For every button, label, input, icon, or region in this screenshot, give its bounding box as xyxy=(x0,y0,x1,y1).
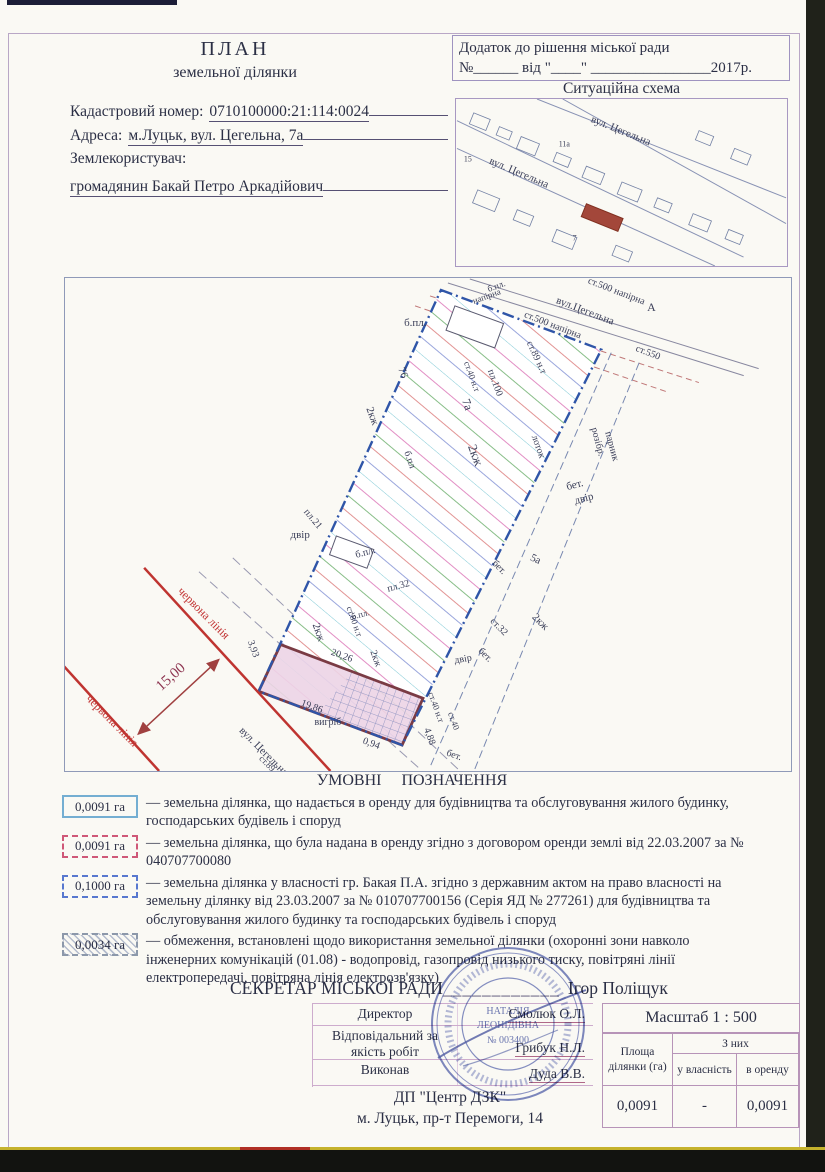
legend-title: УМОВНІ ПОЗНАЧЕННЯ xyxy=(62,772,762,790)
organization-address: м. Луцьк, пр-т Перемоги, 14 xyxy=(300,1109,600,1130)
map-buildings xyxy=(469,113,751,262)
scan-artifact-right-band xyxy=(806,0,825,1172)
stamp-line2: ЛЕОНІДІВНА xyxy=(477,1020,540,1031)
legend-item: 0,0091 га — земельна ділянка, що надаєть… xyxy=(62,794,762,831)
legend-swatch-ownership: 0,1000 га xyxy=(62,875,138,898)
title-line1: ПЛАН xyxy=(110,38,360,61)
map-labels: вул. Цегельнавул. Цегельна1511а7 xyxy=(464,113,653,242)
map-label: б.пл. xyxy=(404,317,427,329)
plan-svg: б.пл.762кжб.плпл.21двірб.пл.пл.322кж2кж7… xyxy=(65,278,791,771)
map-label: ст.500 напірна xyxy=(586,278,647,308)
cadastral-label: Кадастровий номер: xyxy=(70,103,203,121)
situation-map: вул. Цегельнавул. Цегельна1511а7 xyxy=(455,98,788,267)
legend-item: 0,0091 га — земельна ділянка, що була на… xyxy=(62,834,762,871)
stamp-line3: № 003400 xyxy=(487,1035,529,1046)
plan-drawing: б.пл.762кжб.плпл.21двірб.пл.пл.322кж2кж7… xyxy=(64,277,792,772)
map-label: 0,94 xyxy=(361,736,381,752)
area-group-header: З них xyxy=(673,1034,799,1054)
map-label: бет. xyxy=(476,646,495,665)
map-label: ст.550 xyxy=(634,343,662,362)
map-label: бет. xyxy=(445,748,463,764)
legend-swatch-lease-new: 0,0091 га xyxy=(62,795,138,818)
legend-item: 0,1000 га — земельна ділянка у власності… xyxy=(62,874,762,929)
map-label: 4,88 xyxy=(421,726,437,746)
round-stamp: НАТАЛІЯ ЛЕОНІДІВНА № 003400 xyxy=(408,938,608,1110)
situation-title: Ситуаційна схема xyxy=(455,80,788,98)
legend-text: — земельна ділянка, що була надана в оре… xyxy=(146,834,762,871)
scale-box: Масштаб 1 : 500 xyxy=(602,1003,800,1033)
map-label: 5а xyxy=(528,552,543,567)
address-label: Адреса: xyxy=(70,127,122,145)
map-highlighted-plot xyxy=(581,204,623,232)
address-row: Адреса: м.Луцьк, вул. Цегельна, 7а xyxy=(70,122,448,146)
scanned-land-plan-page: ПЛАН земельної ділянки Кадастровий номер… xyxy=(0,0,825,1172)
plan-title: ПЛАН земельної ділянки xyxy=(110,38,360,82)
map-label: А xyxy=(647,300,656,314)
landuser-value: громадянин Бакай Петро Аркадійович xyxy=(70,178,323,197)
map-label: розібр. xyxy=(588,426,606,457)
map-label: двір xyxy=(291,529,311,541)
area-subheader-lease: в оренду xyxy=(737,1054,799,1086)
legend-swatch-lease-old: 0,0091 га xyxy=(62,835,138,858)
map-label: 2кж xyxy=(529,611,551,633)
area-value-lease: 0,0091 xyxy=(737,1086,799,1127)
scan-artifact-bottom-band xyxy=(0,1150,825,1172)
map-label: напірна xyxy=(471,286,502,305)
map-label: пл.21 xyxy=(301,507,324,531)
legend-text: — земельна ділянка у власності гр. Бакая… xyxy=(146,874,762,929)
landuser-label: Землекористувач: xyxy=(70,150,186,168)
legend-text: — земельна ділянка, що надається в оренд… xyxy=(146,794,762,831)
annex-line2: №______ від "____" ________________2017р… xyxy=(459,58,783,78)
address-underline xyxy=(303,122,448,140)
legend-swatch-restrictions: 0,0034 га xyxy=(62,933,138,956)
map-label: ст.40 xyxy=(446,710,462,731)
cadastral-underline xyxy=(369,98,448,116)
landuser-underline xyxy=(323,173,448,191)
map-label: двір xyxy=(573,490,595,507)
landuser-value-row: громадянин Бакай Петро Аркадійович xyxy=(70,173,448,197)
map-label: 11а xyxy=(559,139,571,148)
map-label: вул. Цегельна xyxy=(589,113,652,148)
cadastral-value: 0710100000:21:114:0024 xyxy=(209,103,369,122)
map-label: червона лінія xyxy=(83,692,141,750)
map-label: ст.40 н.т xyxy=(426,691,446,724)
annex-box: Додаток до рішення міської ради №______ … xyxy=(452,35,790,81)
address-value: м.Луцьк, вул. Цегельна, 7а xyxy=(128,127,303,146)
map-label: вигріб xyxy=(314,717,341,728)
map-label: 3,93 xyxy=(245,639,261,659)
annex-line1: Додаток до рішення міської ради xyxy=(459,38,783,58)
area-col-header: Площа ділянки (га) xyxy=(603,1034,673,1086)
cadastral-row: Кадастровий номер: 0710100000:21:114:002… xyxy=(70,98,448,122)
title-line2: земельної ділянки xyxy=(110,64,360,82)
area-table: Площа ділянки (га) З них у власність в о… xyxy=(602,1033,800,1128)
area-value-total: 0,0091 xyxy=(603,1086,673,1127)
area-value-ownership: - xyxy=(673,1086,737,1127)
area-subheader-ownership: у власність xyxy=(673,1054,737,1086)
scan-artifact-top-bar xyxy=(7,0,177,5)
map-label: 15 xyxy=(464,154,472,163)
situation-map-svg: вул. Цегельнавул. Цегельна1511а7 xyxy=(456,99,787,266)
map-label: 7 xyxy=(573,233,577,242)
map-label: 2кж xyxy=(363,405,381,427)
landuser-label-row: Землекористувач: xyxy=(70,150,448,168)
map-label: бет. xyxy=(565,477,585,493)
stamp-line1: НАТАЛІЯ xyxy=(486,1006,530,1017)
map-label: двір xyxy=(454,653,473,667)
map-label: 15,00 xyxy=(153,660,189,694)
